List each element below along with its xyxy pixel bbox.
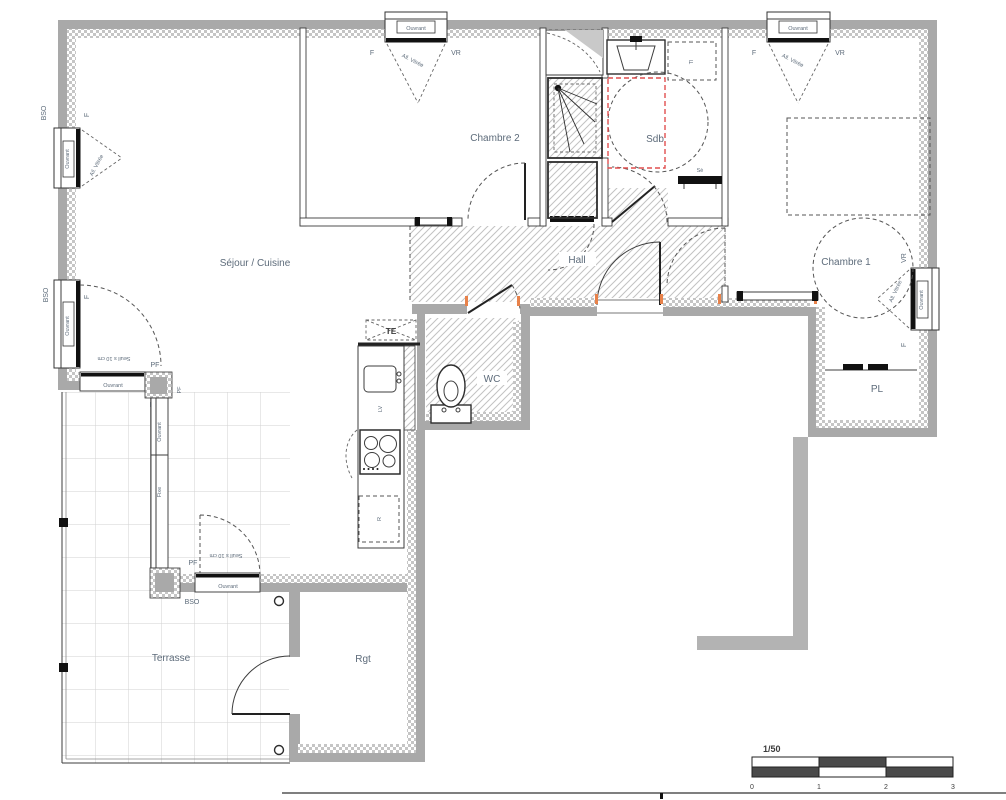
threshold-tick: [517, 296, 520, 306]
window-allvitree-label: All. Vitrée: [89, 154, 105, 178]
window-f-label: F: [84, 295, 91, 299]
tl-label: Tl: [689, 60, 695, 65]
bed-outline-chambre1: [787, 118, 930, 215]
window-bso-label: BSO: [43, 287, 50, 302]
window-vr-label: VR: [835, 50, 845, 57]
wall-pl-bottom-insulation: [825, 420, 928, 428]
room-label-sejour: Séjour / Cuisine: [220, 258, 291, 269]
sheet-frame: [282, 793, 1006, 799]
towel-radiator: Sè: [678, 168, 722, 189]
window-ouvrant-label: Ouvrant: [919, 290, 925, 310]
scale-seg: [886, 767, 953, 777]
room-label-chambre1: Chambre 1: [821, 257, 871, 268]
wall-rgt-bottom-insulation: [298, 744, 418, 753]
threshold-tick: [718, 294, 721, 304]
window-sill: [76, 281, 81, 367]
window-sejour-left-2-pf: Ouvrant BSO F Seuil s 10 cm PF: [43, 280, 161, 369]
lv-label: LV: [378, 406, 384, 413]
bso-caisson-1-core: [150, 377, 167, 394]
window-ouvrant-label: Ouvrant: [157, 422, 163, 442]
washbasin-faucet: [630, 36, 642, 42]
stove-knob: [363, 468, 365, 470]
window-sill: [386, 38, 446, 43]
wall-east-insulation: [407, 430, 416, 744]
terrace-post-round-1: [275, 597, 284, 606]
shower: [548, 78, 602, 158]
pl-sliding-door-a: [843, 364, 863, 370]
wall-wc-east-insulation: [513, 322, 521, 421]
seuil-label-2: Seuil s 10 cm: [209, 552, 242, 558]
stove-knob: [368, 468, 370, 470]
appliance-door-swing: [346, 430, 357, 478]
window-f-label: F: [752, 50, 756, 57]
towel-radiator-bar: [678, 176, 722, 184]
radiator-end: [737, 291, 743, 301]
radiator-body: [415, 218, 452, 225]
window-bso-label: BSO: [41, 105, 48, 120]
window-ouvrant-label: Ouvrant: [65, 149, 71, 169]
window-glazing-lines: [769, 44, 828, 103]
wall-sdb-south-a: [602, 218, 612, 226]
threshold-tick: [465, 296, 468, 306]
window-allvitree-label: All. Vitrée: [401, 53, 425, 69]
te-label: TE: [386, 326, 397, 336]
radiator-body: [737, 292, 818, 300]
scale-seg: [752, 757, 819, 767]
toilet-tank: [431, 405, 471, 423]
wall-chambre1-west-upper: [722, 28, 728, 226]
scale-tick-2: 2: [884, 784, 888, 791]
room-label-rgt: Rgt: [355, 654, 371, 665]
accessibility-circle-chambre1: [813, 218, 913, 318]
scale-bar: 1/50 0 1 2 3: [750, 744, 955, 791]
entry-closet: [546, 30, 603, 75]
scale-seg: [819, 767, 886, 777]
door-ouvrant-label: Ouvrant: [218, 584, 238, 590]
neighbor-wall-vertical: [793, 437, 808, 650]
radiator-end: [447, 217, 452, 226]
wall-sdb-west-lower: [602, 158, 608, 226]
wall-rgt-bottom-outer: [289, 753, 425, 762]
window-fixe-label: Fixe: [157, 487, 163, 497]
accessibility-circle-sdb: [608, 72, 708, 172]
frame-tick: [660, 793, 663, 799]
window-sejour-left-1: Ouvrant BSO F All. Vitrée: [41, 105, 122, 188]
scale-tick-3: 3: [951, 784, 955, 791]
wall-alcove-west-insulation: [816, 307, 825, 428]
window-ouvrant-label: Ouvrant: [788, 26, 808, 32]
r-label: R: [377, 517, 383, 521]
window-ouvrant-label: Ouvrant: [65, 316, 71, 336]
scale-seg: [752, 767, 819, 777]
window-sejour-terrace-strip: Ouvrant Fixe: [151, 398, 168, 568]
door-ouvrant-label: Ouvrant: [103, 383, 123, 389]
door-opening: [289, 657, 300, 714]
wall-pl-bottom-outer: [808, 428, 937, 437]
window-f-label: F: [901, 343, 908, 347]
window-allvitree-label: All. Vitrée: [781, 53, 805, 69]
neighbor-wall-horizontal: [697, 636, 808, 650]
pf-label-rot: PF: [177, 386, 183, 394]
threshold-tick: [595, 294, 598, 304]
appliance-space: [548, 162, 597, 218]
bso-caisson-2-core: [155, 573, 174, 592]
floorplan-canvas: Ouvrant F VR All. Vitrée Ouvrant F VR Al…: [0, 0, 1006, 800]
pf-seuil-label: Seuil s 10 cm: [97, 355, 130, 361]
terrace-post-west-2: [59, 663, 68, 672]
wall-wc-north-b: [520, 304, 530, 314]
pf-door-swing-arc: [80, 285, 161, 366]
threshold-tick: [660, 294, 663, 304]
room-label-hall: Hall: [568, 255, 585, 266]
window-vr-label: VR: [451, 50, 461, 57]
wall-sdb-south-b: [668, 218, 728, 226]
window-sill: [76, 129, 81, 187]
window-vr-label: VR: [901, 253, 908, 263]
pf-label: PF: [151, 362, 160, 369]
window-allvitree-label: All. Vitrée: [888, 280, 903, 304]
wall-chambre1-west-stub: [722, 286, 728, 302]
room-label-sdb: Sdb: [646, 134, 664, 145]
accessibility-zone-sdb: [608, 78, 665, 168]
pl-sliding-door-b: [868, 364, 888, 370]
wall-wc-west: [417, 313, 425, 430]
wall-wc-east-outer: [521, 313, 530, 430]
scale-tick-1: 1: [817, 784, 821, 791]
electrical-panel: TE: [366, 320, 416, 340]
scale-tick-0: 0: [750, 784, 754, 791]
door-sill: [196, 574, 259, 578]
bso-label-2: BSO: [185, 599, 200, 606]
window-ouvrant-label: Ouvrant: [406, 26, 426, 32]
radiator-end: [812, 291, 818, 301]
radiator-chambre2: [415, 217, 452, 226]
wall-wc-north-a: [412, 304, 467, 314]
se-label: Sè: [697, 168, 704, 174]
wall-right-outer: [928, 20, 937, 437]
window-f-label: F: [84, 113, 91, 117]
window-sill: [768, 38, 829, 43]
scale-seg: [886, 757, 953, 767]
terrace-post-round-2: [275, 746, 284, 755]
stove-knob: [377, 468, 379, 470]
pf-label-2: PF: [189, 560, 198, 567]
washbasin: [607, 36, 665, 74]
room-label-wc: WC: [484, 374, 501, 385]
scale-ratio: 1/50: [763, 744, 781, 754]
tl-cabinet: Tl: [668, 42, 716, 80]
terrace-post-west-1: [59, 518, 68, 527]
stove-knob: [372, 468, 374, 470]
room-label-pl: PL: [871, 384, 884, 395]
window-f-label: F: [370, 50, 374, 57]
wall-column-west: [540, 28, 546, 226]
wall-east-outer: [416, 430, 425, 762]
stove: [360, 430, 400, 474]
door-sill: [81, 373, 144, 377]
radiator-end: [415, 217, 420, 226]
door-swing-arc: [468, 163, 525, 220]
room-label-chambre2: Chambre 2: [470, 133, 520, 144]
door-chambre2: [468, 163, 525, 220]
wall-south-outer: [150, 583, 425, 592]
wall-alcove-west-outer: [808, 307, 816, 437]
radiator-vestibule: [737, 291, 818, 301]
scale-seg: [819, 757, 886, 767]
wall-right-insulation: [919, 29, 928, 420]
wall-chambre2-west: [300, 28, 306, 226]
window-glazing-lines: [387, 44, 445, 103]
room-label-terrasse: Terrasse: [152, 653, 191, 664]
wall-hall-south-outer: [530, 307, 810, 316]
